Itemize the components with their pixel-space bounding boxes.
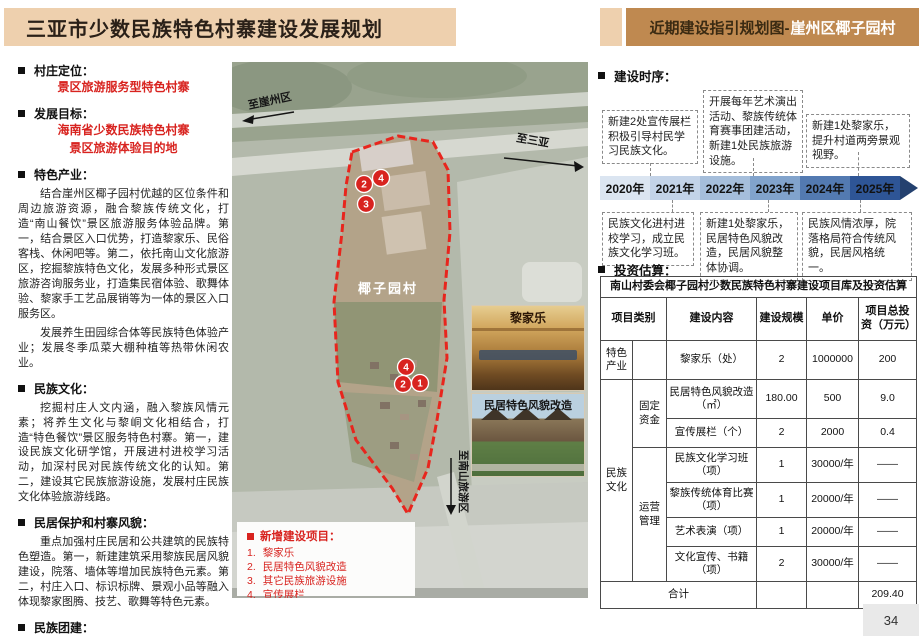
svg-text:至南山旅游区: 至南山旅游区	[457, 450, 470, 513]
svg-text:3: 3	[363, 200, 369, 211]
timeline-year: 2022年	[700, 176, 750, 200]
map-marker: 2	[356, 176, 373, 193]
paragraph: 结合崖州区椰子园村优越的区位条件和周边旅游资源，融合黎族传统文化，打造“南山餐饮…	[18, 187, 229, 322]
page-title: 三亚市少数民族特色村寨建设发展规划	[4, 8, 456, 46]
bullet-square-icon	[18, 385, 25, 392]
bullet-square-icon	[18, 67, 25, 74]
connector-line	[858, 152, 859, 176]
table-row: 运营管理 民族文化学习班（项） 1 30000/年 ——	[601, 448, 917, 483]
subcategory-cell: 运营管理	[633, 448, 667, 582]
paragraph: 挖掘村庄人文内涵，融入黎族风情元素；将养生文化与黎峒文化相结合，打造“特色餐饮”…	[18, 401, 229, 506]
subcategory-cell	[633, 341, 667, 380]
col-header-category: 项目类别	[601, 298, 667, 341]
bullet-square-icon	[598, 72, 605, 79]
section-heading-village-position: 村庄定位：	[18, 62, 229, 79]
highlight-line: 海南省少数民族特色村寨	[18, 122, 229, 139]
timeline-arrowhead-icon	[900, 176, 918, 200]
connector-line	[753, 158, 754, 176]
bullet-square-icon	[598, 266, 605, 273]
bullet-square-icon	[18, 110, 25, 117]
highlight-line: 景区旅游服务型特色村寨	[18, 79, 229, 96]
schedule-note-box: 新建2处宣传展栏积极引导村民学习民族文化。	[602, 110, 698, 164]
total-label: 合计	[601, 582, 757, 609]
photo-dwelling-renovation: 民居特色风貌改造	[471, 393, 585, 477]
paragraph: 发展养生田园综合体等民族特色体验产业；发展冬季瓜菜大棚种植等热带休闲农业。	[18, 326, 229, 371]
map-marker: 2	[395, 376, 412, 393]
legend-item: 3.其它民族旅游设施	[247, 575, 405, 589]
section-heading-ethnic-unity: 民族团建：	[18, 619, 229, 636]
bullet-square-icon	[18, 171, 25, 178]
paragraph: 重点加强村庄民居和公共建筑的民族特色塑造。第一，新建建筑采用黎族民居风貌建设，院…	[18, 535, 229, 610]
timeline-year: 2021年	[650, 176, 700, 200]
left-text-panel: 村庄定位： 景区旅游服务型特色村寨 发展目标： 海南省少数民族特色村寨 景区旅游…	[18, 60, 229, 638]
bullet-square-icon	[18, 624, 25, 631]
svg-text:4: 4	[403, 363, 409, 374]
section-heading-characteristic-industry: 特色产业：	[18, 166, 229, 183]
map-marker: 4	[373, 170, 390, 187]
highlight-line: 景区旅游体验目的地	[18, 140, 229, 157]
map-marker: 4	[398, 359, 415, 376]
category-cell: 特色产业	[601, 341, 633, 380]
timeline-year: 2025年	[850, 176, 900, 200]
timeline-arrow: 2020年 2021年 2022年 2023年 2024年 2025年	[600, 176, 918, 200]
bullet-square-icon	[18, 519, 25, 526]
svg-text:1: 1	[417, 379, 423, 390]
slide-page: 三亚市少数民族特色村寨建设发展规划 近期建设指引规划图-崖州区椰子园村 村庄定位…	[0, 0, 919, 638]
table-title: 南山村委会椰子园村少数民族特色村寨建设项目库及投资估算	[601, 277, 917, 298]
connector-line	[768, 200, 769, 212]
svg-text:椰子园村: 椰子园村	[358, 281, 418, 296]
svg-text:2: 2	[361, 180, 367, 191]
connector-line	[650, 163, 651, 176]
timeline-year: 2020年	[600, 176, 650, 200]
col-header-total: 项目总投资（万元）	[859, 298, 917, 341]
col-header-price: 单价	[807, 298, 859, 341]
label-village-name: 椰子园村	[358, 281, 418, 296]
section-heading-development-goal: 发展目标：	[18, 105, 229, 122]
section-heading-dwelling-protection: 民居保护和村寨风貌：	[18, 514, 229, 531]
schedule-result-box: 新建1处黎家乐，民居特色风貌改造，民居风貌整体协调。	[700, 212, 798, 281]
map-legend: 新增建设项目： 1.黎家乐 2.民居特色风貌改造 3.其它民族旅游设施 4.宣传…	[237, 522, 415, 596]
header-accent-strip	[600, 8, 622, 46]
legend-item: 1.黎家乐	[247, 547, 405, 561]
photo-caption: 民居特色风貌改造	[472, 397, 584, 413]
planning-map: 至崖州区 至三亚 椰子园村 至南山旅游区 2	[232, 62, 588, 598]
schedule-result-box: 民族风情浓厚，院落格局符合传统风貌，民居风格统一。	[802, 212, 912, 281]
subtitle-highlight: 崖州区椰子园村	[790, 17, 895, 38]
connector-line	[672, 200, 673, 212]
section-heading-ethnic-culture: 民族文化：	[18, 380, 229, 397]
timeline-year: 2024年	[800, 176, 850, 200]
legend-item: 2.民居特色风貌改造	[247, 561, 405, 575]
svg-text:2: 2	[400, 380, 406, 391]
connector-line	[860, 200, 861, 212]
section-heading-schedule: 建设时序：	[598, 66, 677, 85]
investment-table: 南山村委会椰子园村少数民族特色村寨建设项目库及投资估算 项目类别 建设内容 建设…	[600, 276, 917, 609]
map-marker: 3	[358, 196, 375, 213]
legend-square-icon	[247, 533, 254, 540]
photo-caption: 黎家乐	[472, 309, 584, 326]
page-number: 34	[863, 604, 919, 636]
svg-text:4: 4	[378, 174, 384, 185]
subtitle-prefix: 近期建设指引规划图-	[649, 17, 789, 38]
photo-lijiale: 黎家乐	[471, 305, 585, 391]
map-marker: 1	[412, 375, 429, 392]
table-row: 特色产业 黎家乐（处） 2 1000000 200	[601, 341, 917, 380]
timeline-year: 2023年	[750, 176, 800, 200]
table-row: 民族文化 固定资金 民居特色风貌改造（㎡） 180.00 500 9.0	[601, 380, 917, 419]
schedule-result-box: 民族文化进村进校学习，成立民族文化学习班。	[602, 212, 694, 266]
col-header-scale: 建设规模	[757, 298, 807, 341]
col-header-content: 建设内容	[667, 298, 757, 341]
subcategory-cell: 固定资金	[633, 380, 667, 448]
header-subtitle: 近期建设指引规划图-崖州区椰子园村	[626, 8, 919, 46]
legend-title: 新增建设项目：	[260, 528, 341, 544]
legend-item: 4.宣传展栏	[247, 589, 405, 598]
category-cell: 民族文化	[601, 380, 633, 582]
